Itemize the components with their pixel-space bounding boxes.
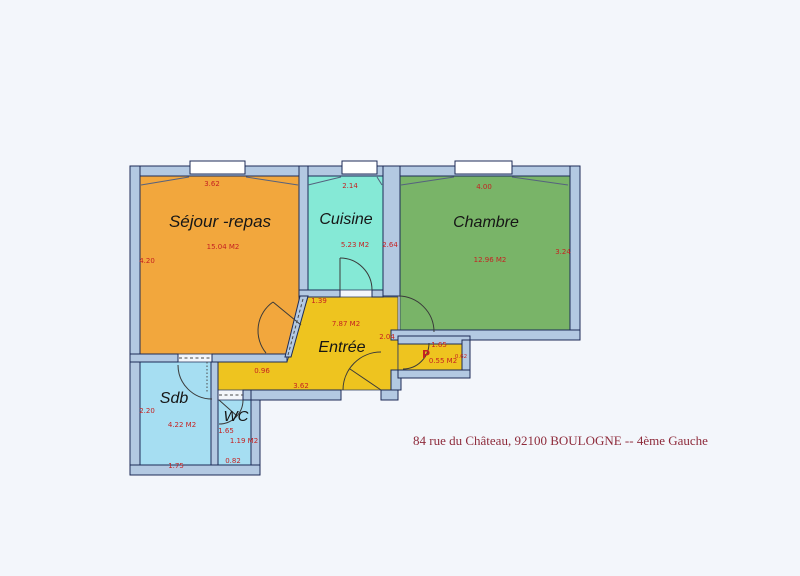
dim-cuisine-right: 2.64 <box>382 241 398 249</box>
wall-entree-bottom-left <box>251 390 341 400</box>
room-chambre-floor <box>400 176 570 330</box>
wall-wc-top-stub <box>243 390 251 400</box>
dim-cuisine-top: 2.14 <box>342 182 358 190</box>
area-sdb: 4.22 M2 <box>168 421 196 429</box>
dim-wc-left: 1.65 <box>218 427 234 435</box>
dim-chambre-right: 3.24 <box>555 248 571 256</box>
dim-placard-right: 0.62 <box>455 354 467 360</box>
wall-sejour-cuisine <box>299 166 308 297</box>
area-sejour: 15.04 M2 <box>207 243 240 251</box>
area-cuisine: 5.23 M2 <box>341 241 369 249</box>
dim-sdb-bottom: 1.75 <box>168 462 184 470</box>
wall-cuisine-chambre <box>383 166 400 296</box>
wall-corridor-top <box>212 354 287 362</box>
label-cuisine: Cuisine <box>319 211 372 228</box>
label-entree: Entrée <box>318 339 365 356</box>
window-chambre-icon <box>455 161 512 174</box>
dim-entree-bottom: 3.62 <box>293 382 309 390</box>
dim-placard-top: 1.65 <box>431 341 447 349</box>
area-wc: 1.19 M2 <box>230 437 258 445</box>
area-placard: 0.55 M2 <box>429 357 457 365</box>
wall-placard-bottom <box>398 370 470 378</box>
label-chambre: Chambre <box>453 214 519 231</box>
dim-chambre-top: 4.00 <box>476 183 492 191</box>
room-sejour-floor <box>140 176 299 354</box>
label-sdb: Sdb <box>160 390 189 407</box>
dim-entree-right: 2.04 <box>379 333 395 341</box>
wall-entree-bottom-right <box>381 390 398 400</box>
room-cuisine-floor <box>308 176 383 290</box>
wall-right <box>570 166 580 340</box>
wall-left <box>130 166 140 475</box>
area-chambre: 12.96 M2 <box>474 256 507 264</box>
dim-sejour-top: 3.62 <box>204 180 220 188</box>
dim-entree-corridor: 0.96 <box>254 367 270 375</box>
dim-sdb-left: 2.20 <box>139 407 155 415</box>
window-sejour-icon <box>190 161 245 174</box>
window-cuisine-icon <box>342 161 377 174</box>
wall-cuisine-bottom-right <box>372 290 383 297</box>
floor-plan-canvas: Séjour -repas Cuisine Chambre Entrée Sdb… <box>0 0 800 576</box>
dim-entree-top-left: 1.39 <box>311 297 327 305</box>
wall-sdb-wc-divider <box>211 362 218 465</box>
wall-sdb-top-left <box>130 354 178 362</box>
area-entree: 7.87 M2 <box>332 320 360 328</box>
label-sejour: Séjour -repas <box>169 212 272 231</box>
floor-plan-drawing: Séjour -repas Cuisine Chambre Entrée Sdb… <box>0 0 800 576</box>
dim-sejour-left: 4.20 <box>139 257 155 265</box>
address-caption: 84 rue du Château, 92100 BOULOGNE -- 4èm… <box>413 433 708 449</box>
wall-bottom <box>130 465 260 475</box>
dim-wc-bottom: 0.82 <box>225 457 241 465</box>
label-wc: WC <box>224 408 249 425</box>
